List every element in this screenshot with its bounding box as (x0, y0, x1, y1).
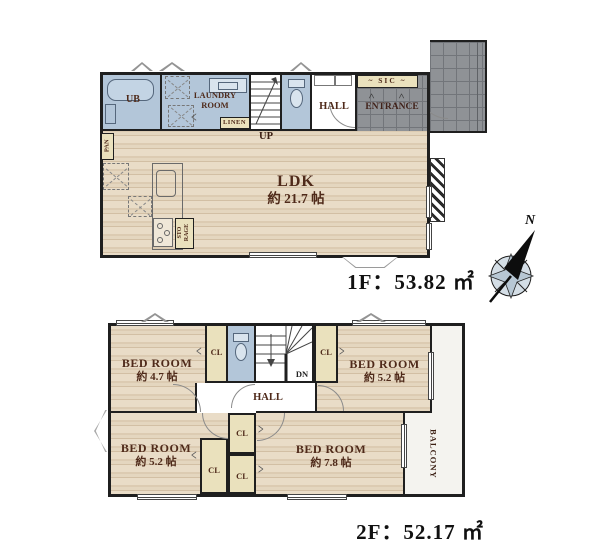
storage-label: STO RAGE (177, 224, 190, 241)
stairs-icon (251, 75, 280, 129)
floor1-area-label: 1F：53.82 ㎡ (321, 266, 501, 296)
room-cl-2: CL (314, 326, 338, 383)
room-pan: PAN (101, 133, 114, 160)
window (352, 320, 426, 326)
room-ub: UB (103, 75, 162, 131)
room-sic: ~ SIC ~ (357, 75, 418, 88)
peak-mark (290, 62, 312, 71)
floorplan-page: UB LAUNDRY ROOM LINEN < (0, 0, 600, 557)
balcony-label: BALCONY (428, 429, 438, 479)
compass-n-label: N (524, 213, 536, 228)
room-cl-3: CL (228, 413, 256, 454)
cl-label: CL (207, 348, 226, 358)
window (249, 252, 317, 258)
room-storage: STO RAGE (175, 218, 194, 249)
toilet-bowl-icon (235, 343, 247, 361)
stove-icon (153, 218, 173, 247)
cl-label: CL (316, 348, 336, 358)
floor2-area-label: 2F：52.17 ㎡ (320, 516, 520, 546)
bed4-name: BED ROOM (261, 443, 401, 457)
laundry-label: LAUNDRY ROOM (180, 91, 250, 111)
bed2-name: BED ROOM (338, 358, 431, 372)
bed1-name: BED ROOM (111, 357, 203, 371)
room-laundry: LAUNDRY ROOM LINEN < (162, 75, 251, 131)
bifold-door-icon: > (339, 346, 345, 361)
porch-edge-line (477, 42, 478, 131)
hall-storage (314, 75, 335, 86)
room-hall-1f: HALL (312, 75, 357, 131)
bed2-size: 約 5.2 帖 (338, 372, 431, 385)
room-linen: LINEN (220, 117, 250, 129)
stairs-down: DN (256, 326, 314, 383)
hook-icon: < (395, 93, 405, 99)
room-cl-5: CL (228, 454, 256, 494)
peak-mark (94, 410, 107, 452)
bath-counter (105, 104, 116, 124)
fridge-icon (103, 163, 129, 190)
hall-door-arc (329, 102, 355, 128)
ub-label: UB (115, 94, 151, 106)
wall (315, 383, 317, 413)
cl-label: CL (230, 429, 254, 439)
up-label: UP (252, 131, 280, 143)
bed3-size: 約 5.2 帖 (111, 456, 201, 469)
compass-icon: N (478, 210, 593, 310)
hatch-mark (430, 158, 445, 222)
peak-mark (131, 62, 153, 71)
toilet-tank-icon (288, 79, 305, 88)
room-toilet-1f (282, 75, 312, 131)
stairs-up (251, 75, 282, 131)
bed1-size: 約 4.7 帖 (111, 371, 203, 384)
cl-label: CL (202, 466, 226, 476)
floor2-plan: BALCONY CL (108, 323, 465, 497)
bifold-door-icon: < (191, 450, 197, 465)
sink-icon (156, 170, 176, 197)
pantry-box-icon (128, 196, 152, 217)
bed3-name: BED ROOM (111, 442, 201, 456)
toilet-bowl-icon (290, 89, 303, 108)
window (137, 494, 197, 500)
toilet-tank-icon (233, 333, 249, 342)
room-balcony: BALCONY (405, 413, 462, 494)
linen-label: LINEN (221, 119, 248, 126)
room-toilet-2f (228, 326, 256, 383)
hook-icon: < (365, 93, 375, 99)
window (287, 494, 347, 500)
bifold-door-icon: > (258, 424, 264, 439)
bifold-door-icon: > (258, 464, 264, 479)
floor1-plan: UB LAUNDRY ROOM LINEN < (100, 72, 430, 258)
room-cl-4: CL (200, 438, 228, 494)
ldk-size-label: 約 21.7 帖 (236, 191, 356, 207)
hall-storage (335, 75, 352, 86)
entrance-label: ENTRANCE (357, 102, 427, 113)
window (401, 424, 407, 468)
room-hall-2f: HALL (197, 383, 315, 413)
bed4-size: 約 7.8 帖 (261, 457, 401, 470)
cl-label: CL (230, 472, 254, 482)
window (426, 223, 432, 250)
room-cl-1: CL (205, 326, 228, 383)
porch-tile (430, 40, 487, 133)
ldk-name-label: LDK (236, 173, 356, 191)
window (426, 186, 432, 218)
dn-label: DN (292, 370, 312, 380)
wall (315, 411, 432, 413)
peak-mark (159, 62, 185, 71)
room-entrance: ~ SIC ~ < < ENTRANCE (357, 75, 427, 131)
bifold-door-icon: < (196, 346, 202, 361)
pan-label: PAN (103, 140, 110, 153)
sic-label: ~ SIC ~ (358, 77, 417, 86)
bifold-door-icon: < (191, 112, 197, 127)
